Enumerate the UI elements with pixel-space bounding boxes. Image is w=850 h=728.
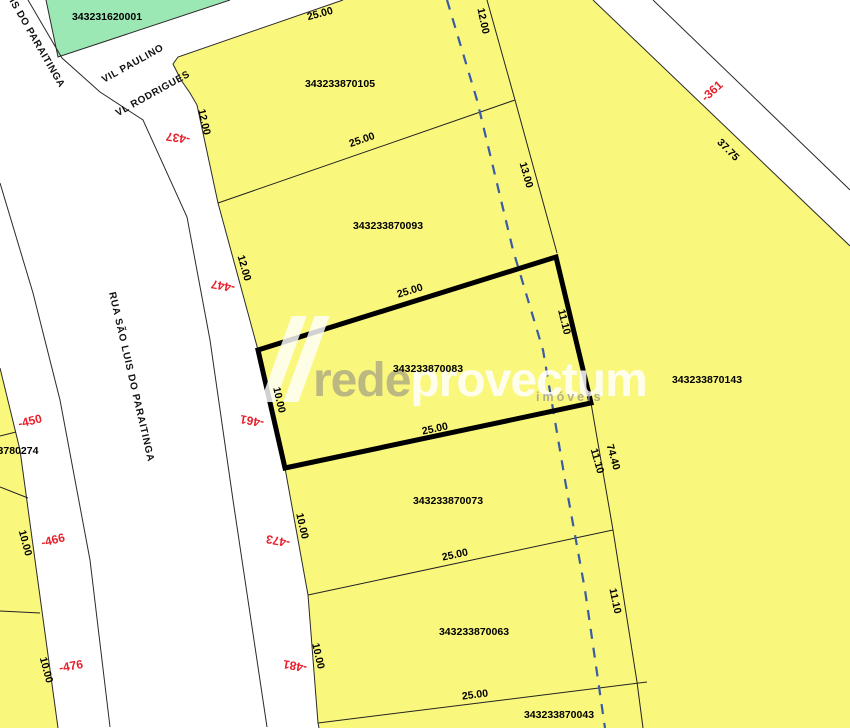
parcel-label-093: 343233870093 bbox=[353, 220, 423, 232]
parcel-label-063: 343233870063 bbox=[439, 626, 509, 638]
parcel-label-west-partial: 3780274 bbox=[0, 445, 38, 457]
watermark-tagline: imóveis bbox=[536, 390, 604, 404]
parcel-label-143: 343233870143 bbox=[672, 374, 742, 386]
cadastral-map-canvas[interactable]: redeprovectum imóveis 343231620001 34323… bbox=[0, 0, 850, 728]
parcel-label-105: 343233870105 bbox=[305, 78, 375, 90]
parcel-label-073: 343233870073 bbox=[413, 495, 483, 507]
watermark-brand-rede: rede bbox=[313, 354, 410, 407]
parcel-label-083: 343233870083 bbox=[393, 363, 463, 375]
parcel-label-green: 343231620001 bbox=[72, 11, 142, 23]
watermark-brand-provectum: provectum bbox=[410, 354, 646, 407]
parcel-label-043: 343233870043 bbox=[524, 709, 594, 721]
